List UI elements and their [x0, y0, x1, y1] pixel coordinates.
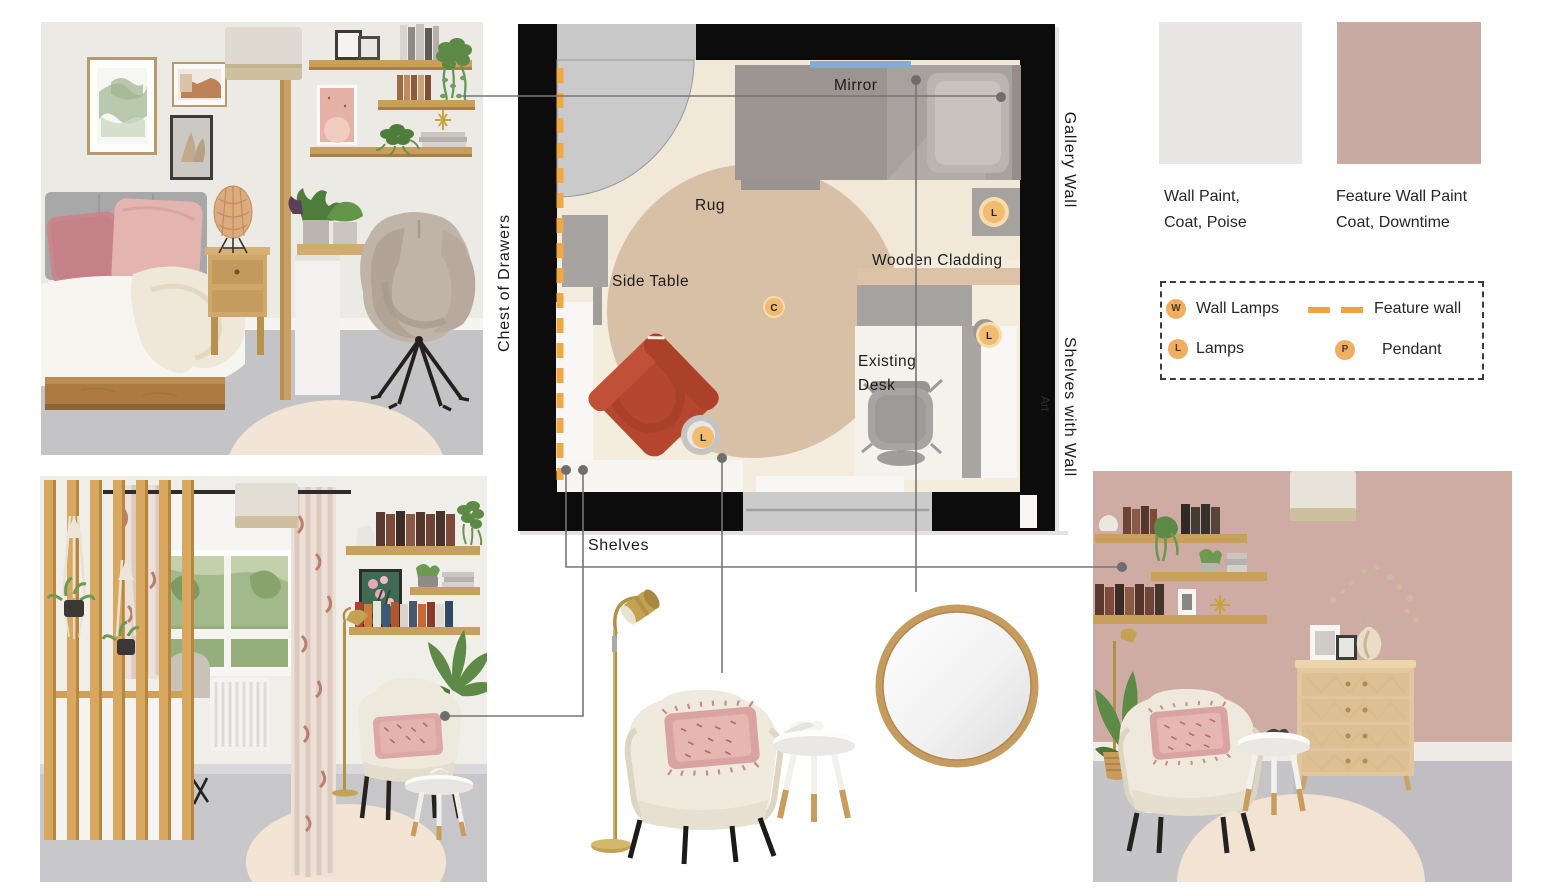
- svg-text:Rug: Rug: [695, 197, 725, 214]
- svg-text:Mirror: Mirror: [834, 77, 877, 94]
- svg-text:Existing: Existing: [858, 353, 916, 370]
- svg-text:C: C: [770, 303, 777, 314]
- svg-text:L: L: [986, 331, 992, 342]
- svg-text:L: L: [991, 208, 997, 219]
- svg-text:Desk: Desk: [858, 377, 895, 394]
- svg-text:Side Table: Side Table: [612, 273, 689, 290]
- svg-text:L: L: [700, 433, 706, 444]
- svg-text:Wooden Cladding: Wooden Cladding: [872, 252, 1002, 269]
- svg-text:Art: Art: [1038, 396, 1052, 412]
